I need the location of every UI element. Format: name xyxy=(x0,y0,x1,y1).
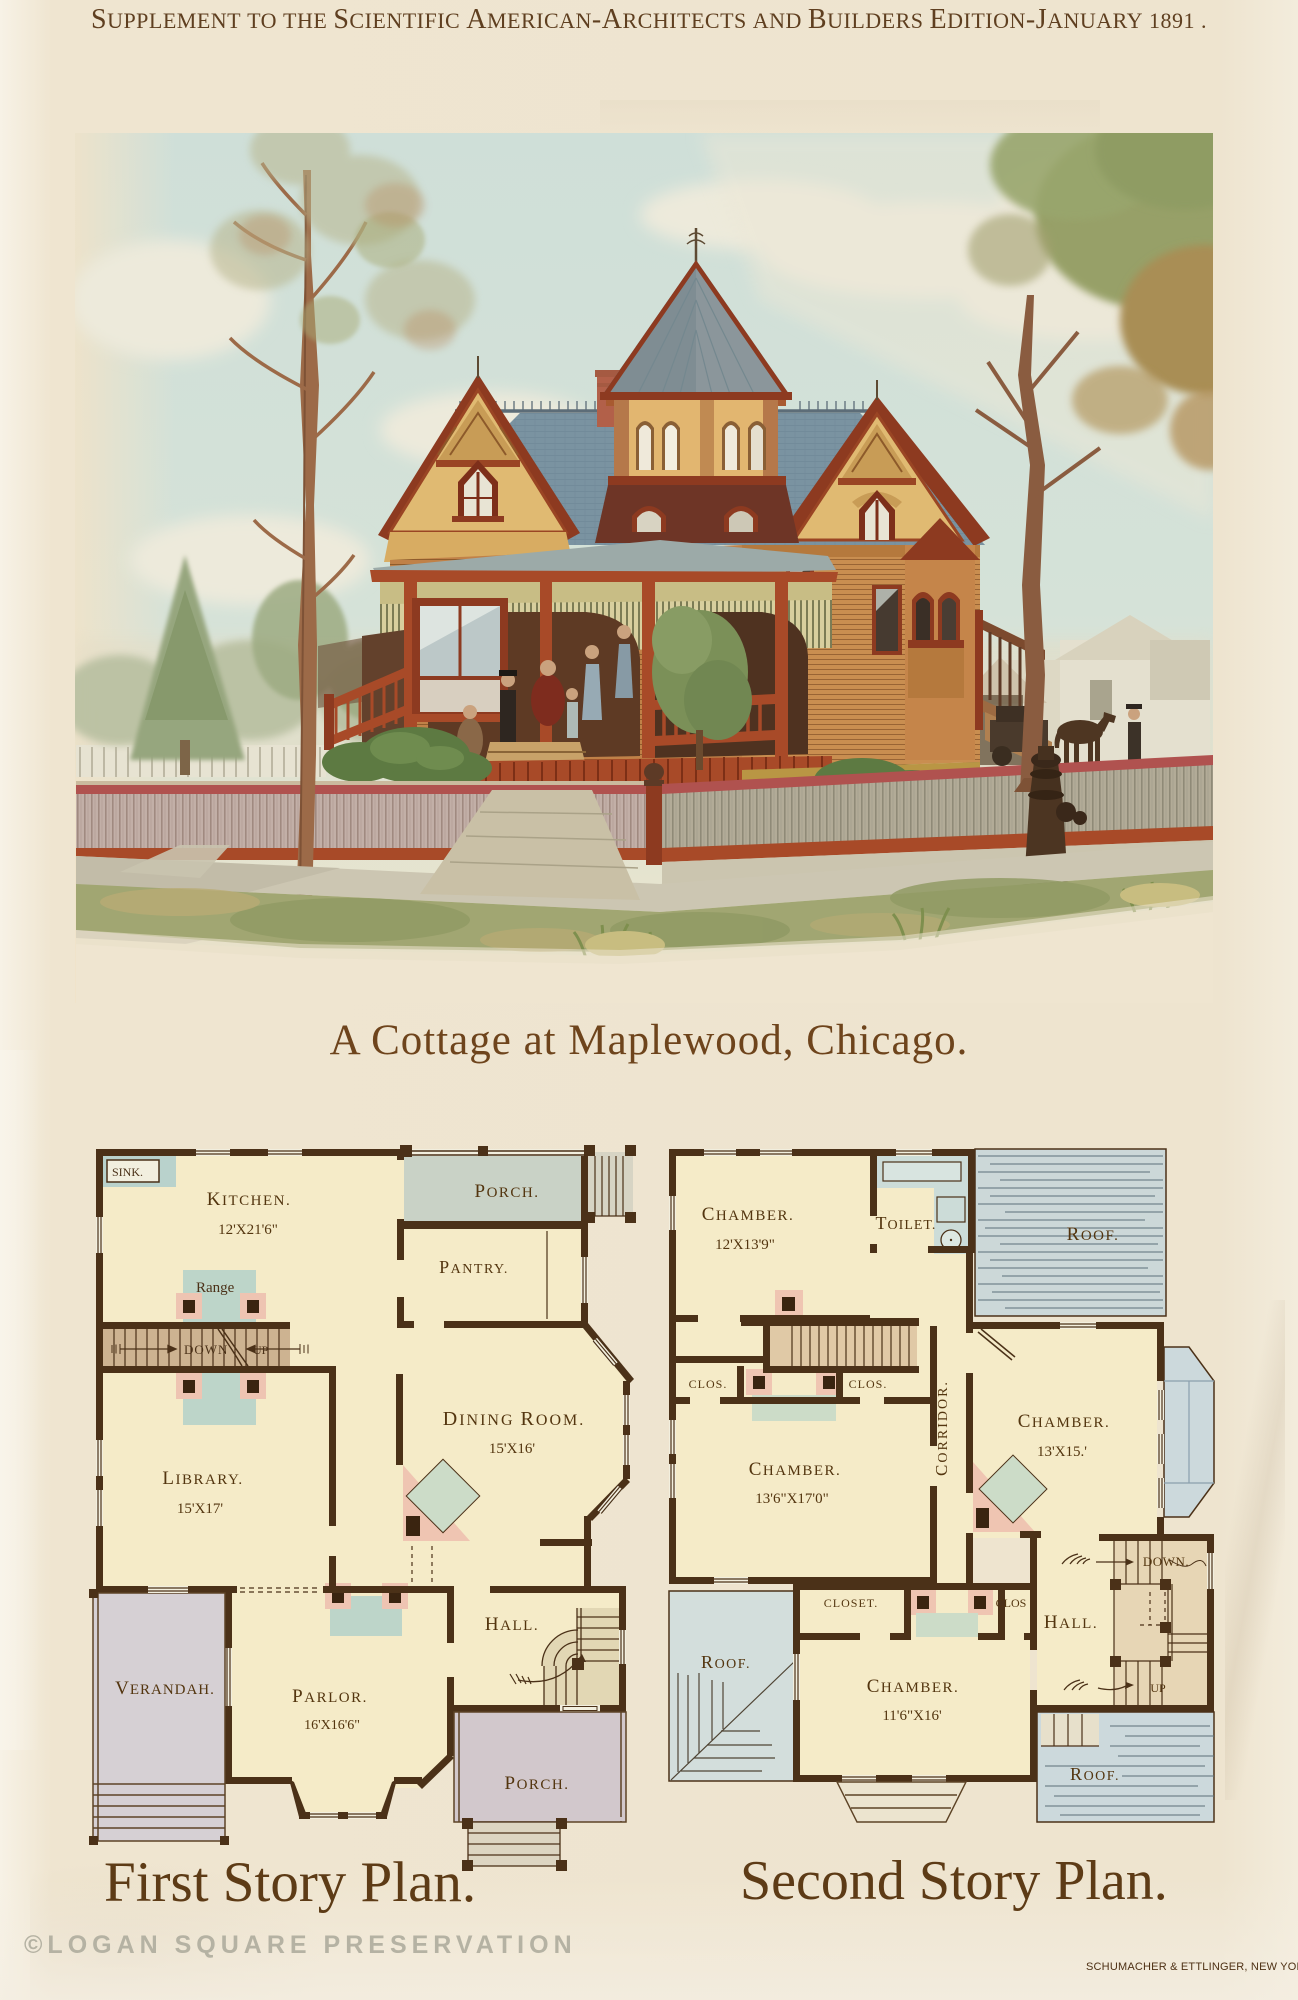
svg-text:CLOS.: CLOS. xyxy=(689,1377,728,1391)
svg-text:11'6"X16': 11'6"X16' xyxy=(882,1708,942,1724)
svg-text:13'6"X17'0": 13'6"X17'0" xyxy=(755,1491,828,1507)
svg-text:12'X21'6": 12'X21'6" xyxy=(218,1222,278,1238)
svg-text:ROOF.: ROOF. xyxy=(1067,1224,1120,1245)
svg-text:VERANDAH.: VERANDAH. xyxy=(115,1678,215,1699)
svg-text:HALL.: HALL. xyxy=(485,1614,539,1635)
svg-text:CLOSET.: CLOSET. xyxy=(824,1596,878,1610)
svg-text:CHAMBER.: CHAMBER. xyxy=(867,1676,960,1697)
svg-text:HALL.: HALL. xyxy=(1044,1612,1098,1633)
svg-text:UP: UP xyxy=(1150,1681,1166,1695)
svg-text:13'X15.': 13'X15.' xyxy=(1037,1444,1087,1460)
svg-text:LIBRARY.: LIBRARY. xyxy=(162,1468,243,1489)
svg-text:CHAMBER.: CHAMBER. xyxy=(749,1459,842,1480)
svg-text:UP: UP xyxy=(253,1343,269,1357)
svg-text:CLOS: CLOS xyxy=(996,1596,1027,1610)
svg-text:CHAMBER.: CHAMBER. xyxy=(702,1204,795,1225)
svg-text:PARLOR.: PARLOR. xyxy=(292,1686,368,1707)
svg-text:KITCHEN.: KITCHEN. xyxy=(207,1189,291,1210)
svg-text:DOWN.: DOWN. xyxy=(1143,1554,1189,1569)
svg-text:PORCH.: PORCH. xyxy=(474,1181,539,1202)
svg-text:16'X16'6": 16'X16'6" xyxy=(304,1718,360,1733)
svg-text:12'X13'9": 12'X13'9" xyxy=(715,1237,775,1253)
svg-text:Range: Range xyxy=(196,1280,235,1296)
svg-text:CHAMBER.: CHAMBER. xyxy=(1018,1411,1111,1432)
svg-text:DOWN: DOWN xyxy=(184,1342,228,1357)
svg-text:PORCH.: PORCH. xyxy=(504,1773,569,1794)
svg-text:15'X16': 15'X16' xyxy=(489,1441,536,1457)
svg-text:SINK.: SINK. xyxy=(112,1165,143,1179)
svg-text:DINING ROOM.: DINING ROOM. xyxy=(443,1408,585,1430)
svg-text:CLOS.: CLOS. xyxy=(849,1377,888,1391)
svg-text:15'X17': 15'X17' xyxy=(177,1501,224,1517)
